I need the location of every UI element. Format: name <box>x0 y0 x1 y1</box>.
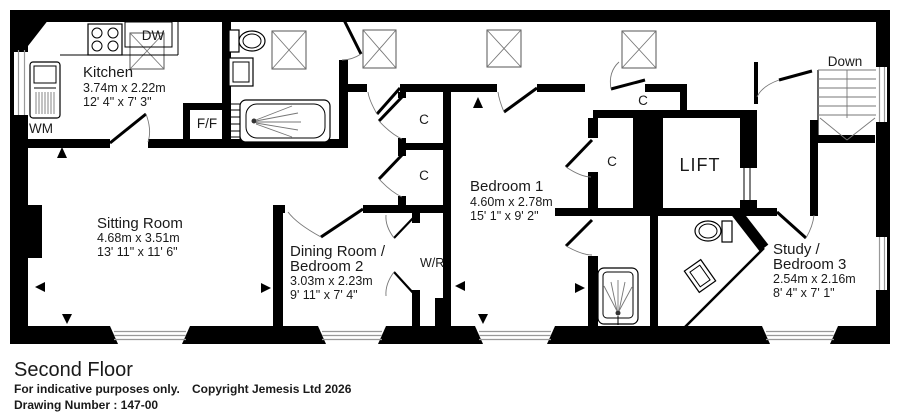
study-label-2: Bedroom 3 <box>773 256 846 273</box>
floor-plan-page: Kitchen 3.74m x 2.22m 12' 4" x 7' 3" Sit… <box>0 0 900 414</box>
shower-room-door <box>566 220 592 255</box>
dining-room-metric: 3.03m x 2.23m <box>290 274 373 288</box>
toilet-icon <box>695 221 732 242</box>
study-metric: 2.54m x 2.16m <box>773 272 856 286</box>
washing-machine-label: WM <box>29 121 53 136</box>
sitting-room-metric: 4.68m x 3.51m <box>97 231 180 245</box>
skylight-icon <box>272 31 306 69</box>
toilet-icon <box>229 30 265 52</box>
kitchen-imperial: 12' 4" x 7' 3" <box>83 95 152 109</box>
dining-room-label-2: Bedroom 2 <box>290 258 363 275</box>
closet-1-door <box>379 97 402 139</box>
bedroom-closet-door <box>566 140 592 177</box>
closet-label: C <box>419 168 429 183</box>
skylight-icon <box>487 30 521 67</box>
floor-title: Second Floor <box>14 359 133 381</box>
landing-door <box>757 71 812 97</box>
fridge-freezer-label: F/F <box>197 116 217 131</box>
bedroom-1-door <box>498 88 537 112</box>
hallway-door <box>368 88 400 114</box>
floor-plan-drawing: Kitchen 3.74m x 2.22m 12' 4" x 7' 3" Sit… <box>0 0 900 414</box>
study-imperial: 8' 4" x 7' 1" <box>773 286 835 300</box>
window-dining-room <box>322 332 382 340</box>
shower-tray-icon <box>598 268 638 325</box>
sitting-room-imperial: 13' 11" x 11' 6" <box>97 245 178 259</box>
closet-label: C <box>638 93 648 108</box>
wardrobe-label: W/R <box>420 256 444 270</box>
hob-icon <box>88 24 122 55</box>
closet-2-door <box>379 155 402 197</box>
study-door <box>777 212 814 238</box>
closet-label: C <box>607 154 617 169</box>
bedroom-1-metric: 4.60m x 2.78m <box>470 195 553 209</box>
bedroom-1-imperial: 15' 1" x 9' 2" <box>470 209 539 223</box>
footer: Second Floor For indicative purposes onl… <box>14 359 352 412</box>
dishwasher-label: DW <box>142 28 165 43</box>
dining-room-imperial: 9' 11" x 7' 4" <box>290 288 358 302</box>
bathtub-icon <box>240 100 330 142</box>
lift-label: LIFT <box>679 155 720 175</box>
skylights <box>130 30 656 69</box>
copyright-text: Copyright Jemesis Ltd 2026 <box>192 382 352 396</box>
bedroom-1-label: Bedroom 1 <box>470 178 543 195</box>
kitchen-metric: 3.74m x 2.22m <box>83 81 166 95</box>
kitchen-door <box>110 114 150 143</box>
sitting-room-label: Sitting Room <box>97 215 183 232</box>
washing-machine-icon <box>30 62 60 118</box>
dining-room-door <box>288 209 363 237</box>
disclaimer-text: For indicative purposes only. <box>14 382 180 396</box>
window-study <box>766 332 834 340</box>
stairs-down-label: Down <box>828 54 863 69</box>
kitchen-label: Kitchen <box>83 64 133 81</box>
closet-label: C <box>419 112 429 127</box>
staircase <box>818 70 876 143</box>
basin-icon <box>229 58 253 86</box>
skylight-icon <box>363 30 396 68</box>
wardrobe-doors <box>386 215 415 296</box>
drawing-number: Drawing Number : 147-00 <box>14 398 158 412</box>
basin-icon <box>684 260 715 293</box>
window-sitting-room-left <box>114 332 186 340</box>
skylight-icon <box>622 31 656 68</box>
window-bedroom-1 <box>479 332 551 340</box>
